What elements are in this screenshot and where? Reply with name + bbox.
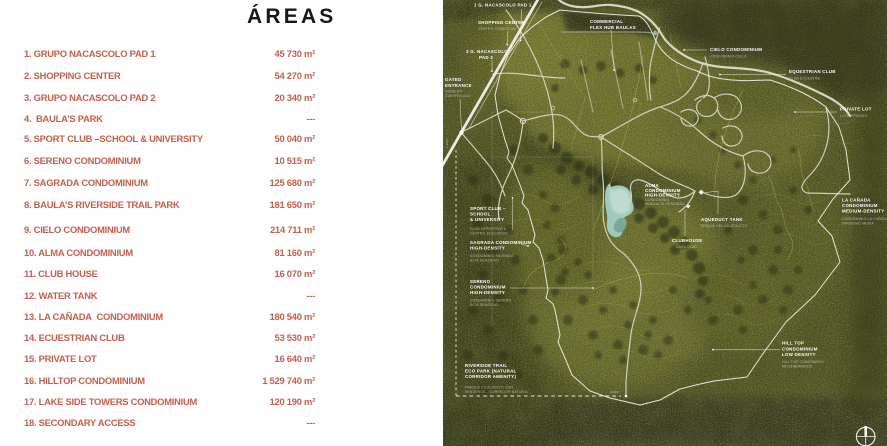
svg-text:CLUB DEPORTIVO &CENTRO EDUCATI: CLUB DEPORTIVO &CENTRO EDUCATIVO	[470, 227, 508, 235]
svg-text:CONDOMINIO CIELO: CONDOMINIO CIELO	[710, 55, 747, 59]
svg-text:FARM: FARM	[610, 390, 619, 394]
svg-text:SHOPPING CENTER: SHOPPING CENTER	[478, 20, 525, 25]
svg-text:LOTE PRIVADO: LOTE PRIVADO	[840, 114, 867, 118]
svg-text:PRIVATE LOT: PRIVATE LOT	[840, 107, 872, 112]
svg-text:CIELO CONDOMINIUM: CIELO CONDOMINIUM	[710, 47, 762, 52]
svg-text:1 WAY: 1 WAY	[445, 138, 449, 148]
svg-text:CLUB ECUESTRE: CLUB ECUESTRE	[789, 77, 821, 81]
svg-text:1 G. NACASCOLO PAD 1: 1 G. NACASCOLO PAD 1	[474, 3, 532, 8]
svg-text:CASA CLUB: CASA CLUB	[676, 245, 697, 249]
svg-text:AQUEDUCT TANK: AQUEDUCT TANK	[701, 217, 743, 222]
svg-text:EQUESTRIAN CLUB: EQUESTRIAN CLUB	[789, 69, 836, 74]
svg-text:CENTRO COMERCIAL: CENTRO COMERCIAL	[478, 27, 517, 31]
svg-text:CLUBHOUSE: CLUBHOUSE	[672, 238, 703, 243]
svg-text:TANQUE DEL ACUEDUCTO: TANQUE DEL ACUEDUCTO	[700, 224, 748, 228]
